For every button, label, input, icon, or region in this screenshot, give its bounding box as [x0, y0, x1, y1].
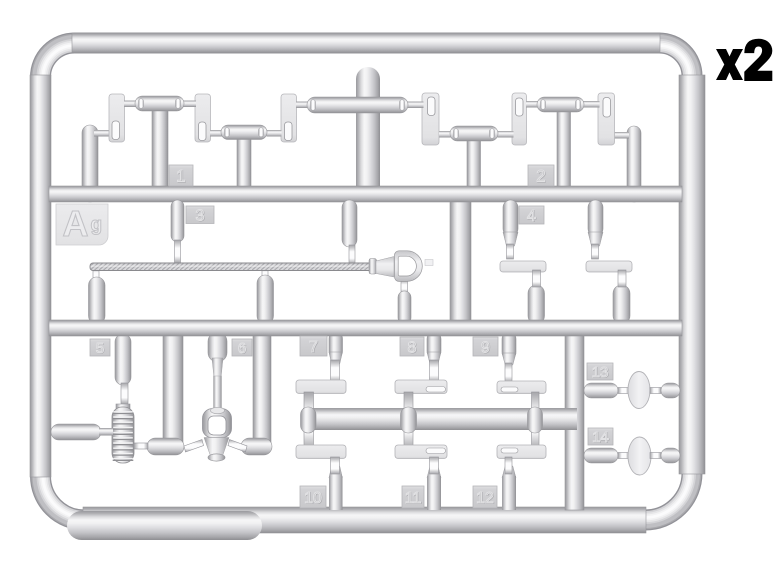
svg-text:10: 10 [304, 490, 322, 507]
svg-text:g: g [91, 215, 103, 236]
svg-text:13: 13 [592, 364, 609, 381]
svg-text:1: 1 [176, 167, 185, 186]
svg-text:12: 12 [476, 490, 494, 507]
svg-text:3: 3 [196, 208, 205, 225]
svg-text:4: 4 [527, 208, 536, 225]
svg-text:5: 5 [96, 340, 104, 357]
svg-text:8: 8 [408, 339, 417, 356]
svg-text:9: 9 [481, 339, 490, 356]
svg-text:14: 14 [592, 429, 609, 446]
svg-text:11: 11 [405, 490, 422, 507]
svg-text:2: 2 [536, 167, 545, 186]
svg-text:7: 7 [309, 339, 318, 356]
svg-text:A: A [63, 203, 89, 244]
svg-text:6: 6 [238, 340, 246, 357]
